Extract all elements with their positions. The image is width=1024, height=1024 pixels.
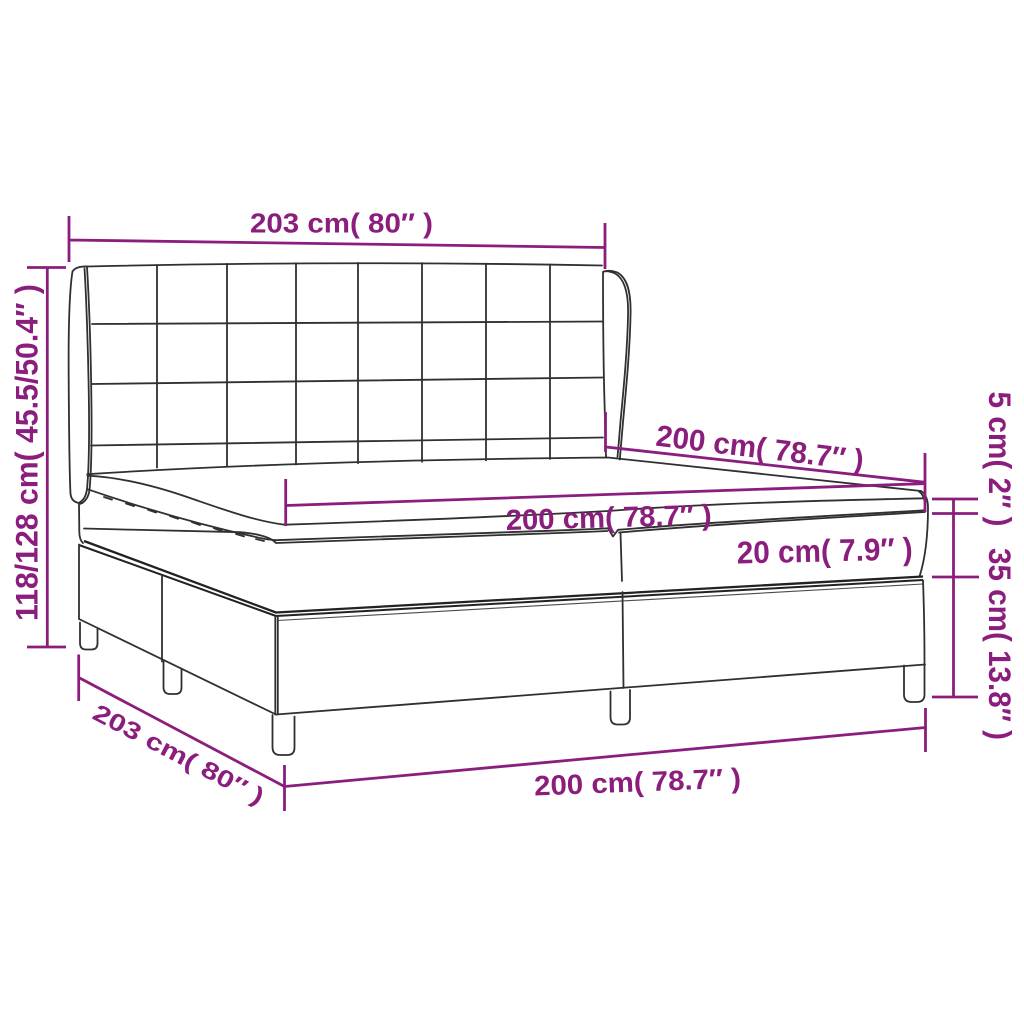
svg-text:20 cm( 7.9″ ): 20 cm( 7.9″ ) bbox=[736, 531, 913, 571]
svg-text:200 cm( 78.7″ ): 200 cm( 78.7″ ) bbox=[505, 500, 712, 537]
svg-text:5 cm( 2″ ): 5 cm( 2″ ) bbox=[982, 392, 1018, 527]
svg-text:118/128 cm( 45.5/50.4″ ): 118/128 cm( 45.5/50.4″ ) bbox=[9, 284, 45, 621]
svg-text:35 cm( 13.8″ ): 35 cm( 13.8″ ) bbox=[982, 548, 1018, 740]
svg-text:203 cm( 80″ ): 203 cm( 80″ ) bbox=[250, 208, 433, 239]
